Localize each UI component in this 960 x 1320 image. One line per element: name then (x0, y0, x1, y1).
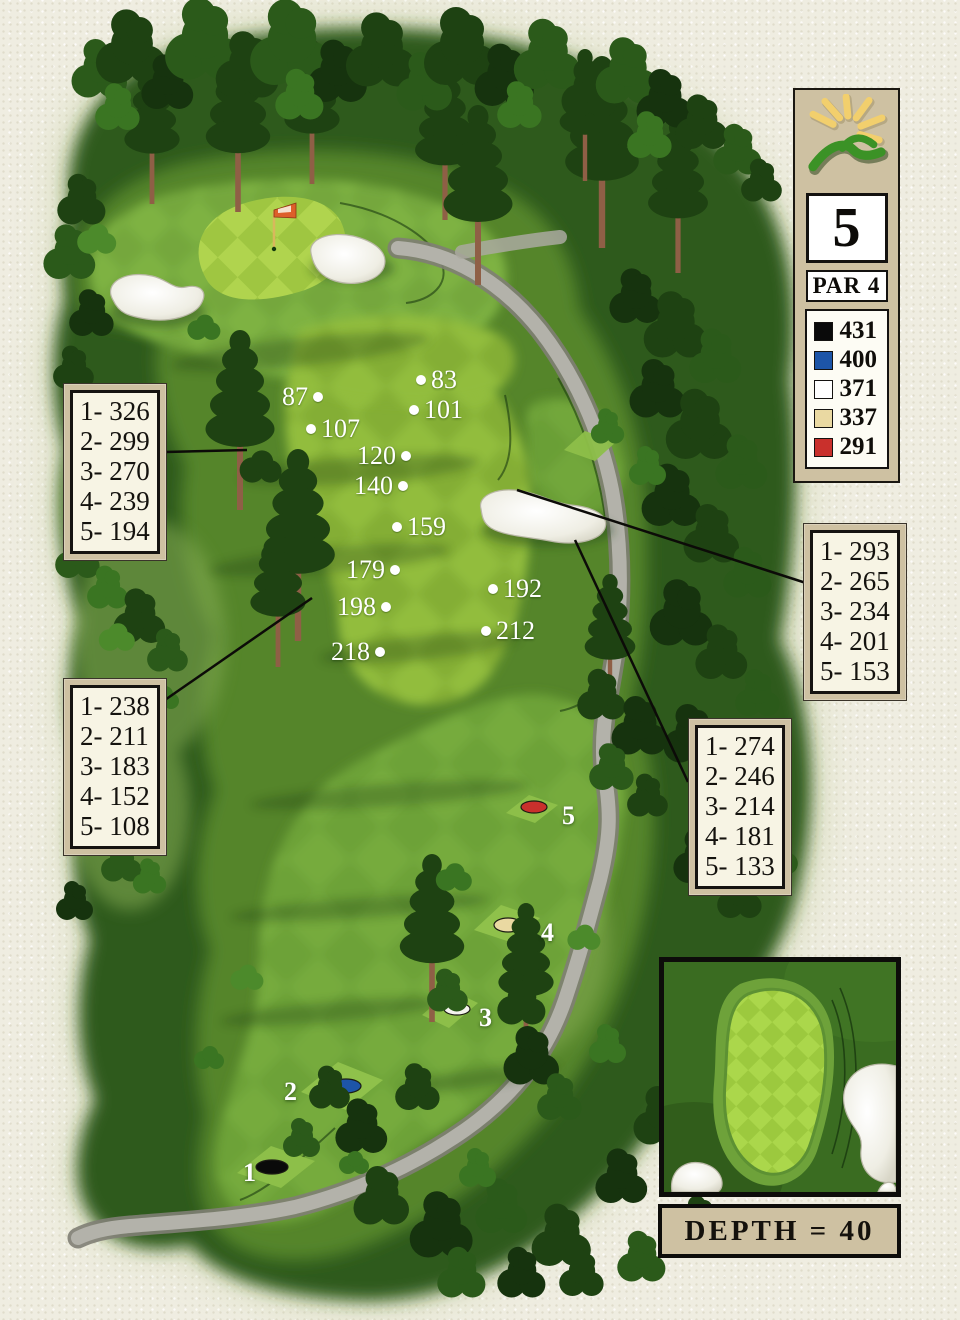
distance-dot-icon (416, 375, 426, 385)
distance-dot-icon (481, 626, 491, 636)
legend-row: 291 (814, 434, 883, 460)
distance-value: 120 (357, 442, 396, 470)
distance-marker: 179 (346, 556, 400, 584)
legend-row: 400 (814, 347, 883, 373)
yardage-row: 5- 133 (705, 851, 775, 881)
distance-dot-icon (409, 405, 419, 415)
green-detail-inset (659, 957, 901, 1197)
yardage-row: 1- 238 (80, 691, 150, 721)
yardage-row: 3- 214 (705, 791, 775, 821)
yardage-box-lower-right: 1- 274 2- 246 3- 214 4- 181 5- 133 (688, 718, 792, 896)
distance-dot-icon (313, 392, 323, 402)
tee-number-3: 3 (479, 1003, 492, 1033)
legend-row: 371 (814, 376, 883, 402)
yardage-row: 4- 201 (820, 626, 890, 656)
yardage-row: 2- 246 (705, 761, 775, 791)
distance-value: 218 (331, 638, 370, 666)
sun-mountain-logo-icon (800, 94, 894, 186)
distance-value: 198 (337, 593, 376, 621)
yardage-row: 1- 293 (820, 536, 890, 566)
distance-dot-icon (306, 424, 316, 434)
distance-value: 107 (321, 415, 360, 443)
tee-yardage: 371 (840, 376, 878, 402)
distance-dot-icon (401, 451, 411, 461)
distance-marker: 192 (488, 575, 542, 603)
distance-marker: 198 (337, 593, 391, 621)
distance-marker: 218 (331, 638, 385, 666)
yardage-row: 1- 326 (80, 396, 150, 426)
yardage-row: 5- 153 (820, 656, 890, 686)
distance-dot-icon (381, 602, 391, 612)
tee-number-2: 2 (284, 1077, 297, 1107)
tee-color-swatch (814, 409, 833, 428)
hole-number: 5 (806, 193, 888, 263)
green-detail-drawing (664, 962, 896, 1192)
green-depth-label: DEPTH = 40 (658, 1204, 901, 1258)
distance-dot-icon (375, 647, 385, 657)
distance-marker: 159 (392, 513, 446, 541)
yardage-row: 2- 211 (80, 721, 150, 751)
distance-value: 140 (354, 472, 393, 500)
distance-marker: 83 (416, 366, 457, 394)
legend-row: 431 (814, 318, 883, 344)
tee-yardage: 431 (840, 318, 878, 344)
tee-color-swatch (814, 322, 833, 341)
tee-legend: 431 400 371 337 291 (805, 309, 889, 469)
yardage-book-page: 83 101 87 107 120 140 159 179 192 198 21… (0, 0, 960, 1320)
yardage-row: 1- 274 (705, 731, 775, 761)
tee-yardage: 337 (840, 405, 878, 431)
tee-number-5: 5 (562, 801, 575, 831)
yardage-row: 5- 108 (80, 811, 150, 841)
yardage-box-lower-left: 1- 238 2- 211 3- 183 4- 152 5- 108 (63, 678, 167, 856)
yardage-box-upper-right: 1- 293 2- 265 3- 234 4- 201 5- 153 (803, 523, 907, 701)
tee-number-1: 1 (243, 1158, 256, 1188)
distance-value: 212 (496, 617, 535, 645)
yardage-row: 2- 265 (820, 566, 890, 596)
yardage-row: 4- 239 (80, 486, 150, 516)
distance-marker: 107 (306, 415, 360, 443)
yardage-row: 3- 234 (820, 596, 890, 626)
tee-yardage: 291 (840, 434, 878, 460)
distance-value: 179 (346, 556, 385, 584)
distance-marker: 212 (481, 617, 535, 645)
distance-marker: 140 (354, 472, 408, 500)
yardage-row: 4- 181 (705, 821, 775, 851)
yardage-row: 3- 183 (80, 751, 150, 781)
tee-yardage: 400 (840, 347, 878, 373)
yardage-row: 2- 299 (80, 426, 150, 456)
tee-color-swatch (814, 380, 833, 399)
legend-row: 337 (814, 405, 883, 431)
distance-marker: 87 (282, 383, 323, 411)
distance-value: 83 (431, 366, 457, 394)
par-label: PAR 4 (806, 270, 888, 302)
tee-marker-5 (521, 801, 547, 813)
tee-color-swatch (814, 351, 833, 370)
distance-value: 87 (282, 383, 308, 411)
tee-marker-1 (256, 1160, 288, 1174)
distance-dot-icon (488, 584, 498, 594)
distance-marker: 120 (357, 442, 411, 470)
inset-green (724, 989, 825, 1174)
yardage-row: 5- 194 (80, 516, 150, 546)
distance-dot-icon (398, 481, 408, 491)
yardage-row: 3- 270 (80, 456, 150, 486)
distance-value: 192 (503, 575, 542, 603)
hole-info-panel: 5 PAR 4 431 400 371 337 291 (793, 88, 900, 483)
distance-value: 101 (424, 396, 463, 424)
tee-color-swatch (814, 438, 833, 457)
yardage-box-upper-left: 1- 326 2- 299 3- 270 4- 239 5- 194 (63, 383, 167, 561)
distance-dot-icon (392, 522, 402, 532)
distance-marker: 101 (409, 396, 463, 424)
distance-dot-icon (390, 565, 400, 575)
tee-number-4: 4 (541, 918, 554, 948)
yardage-row: 4- 152 (80, 781, 150, 811)
distance-value: 159 (407, 513, 446, 541)
